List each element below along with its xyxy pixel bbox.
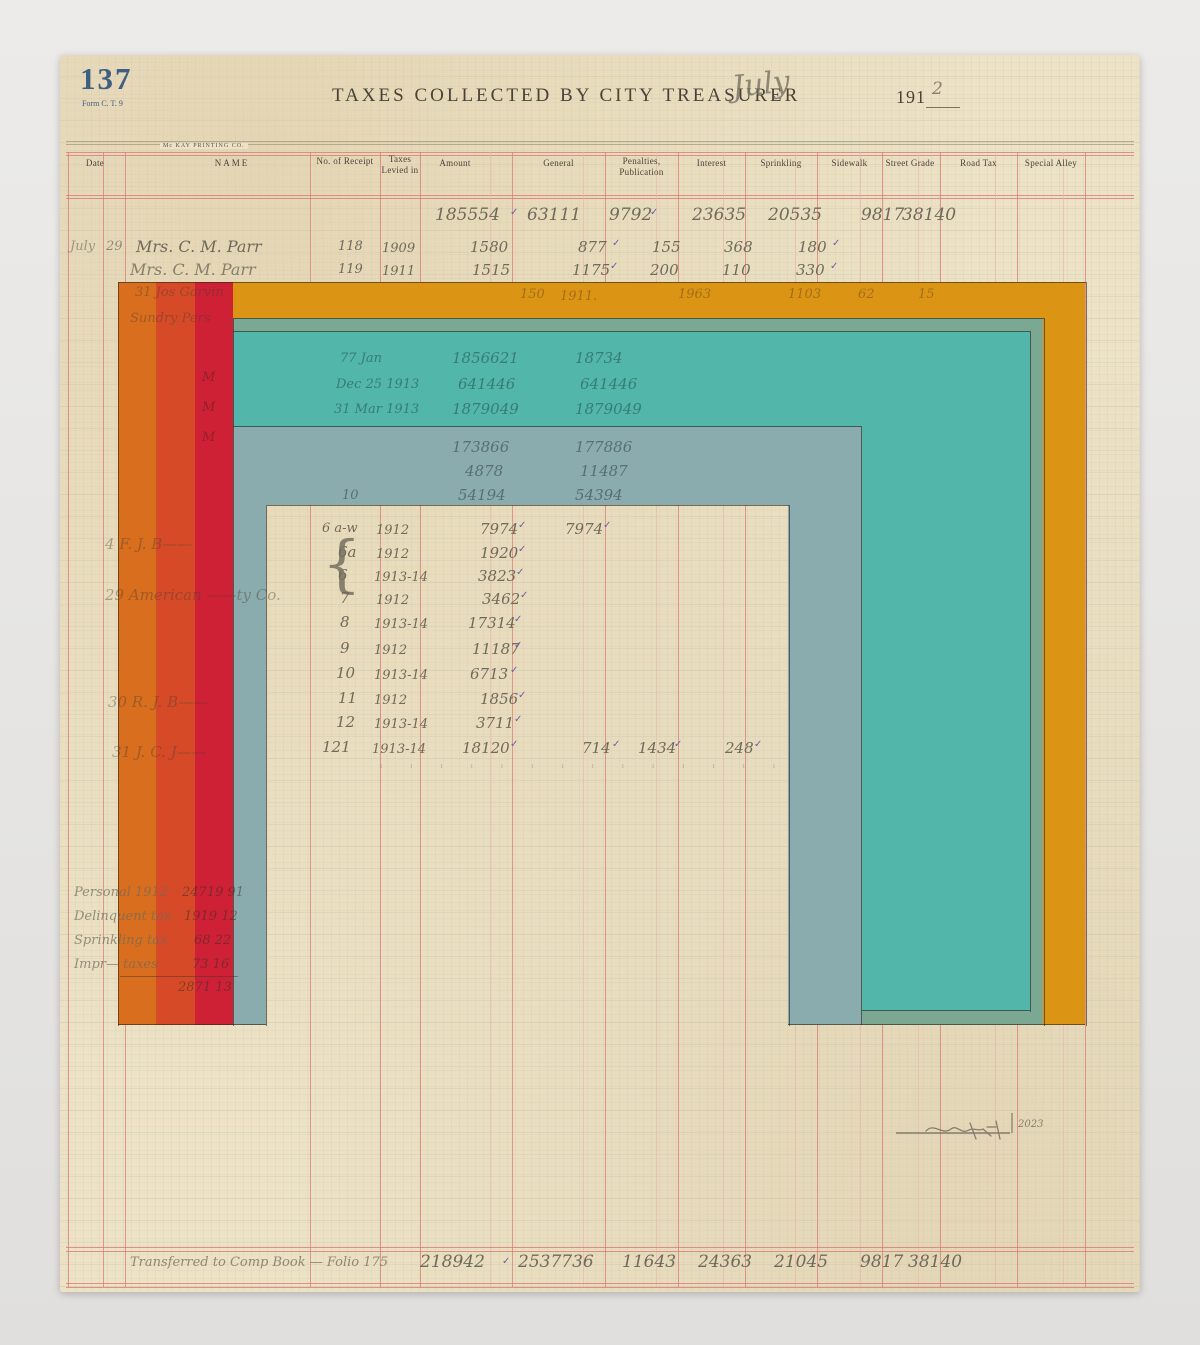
entry-receipt: 118 <box>338 239 363 254</box>
faint-window-name: 4 F. J. B—— <box>105 535 192 553</box>
faint-window-name: 31 J. C. J—— <box>112 743 207 761</box>
check-mark: ✓ <box>510 739 518 750</box>
footer-rule <box>66 1283 1134 1284</box>
year-printed: 191 <box>896 87 926 108</box>
faint-date: Dec 25 1913 <box>336 377 419 392</box>
faint-window-name: 29 American ——ty Co. <box>105 586 281 604</box>
check-mark: ✓ <box>518 520 526 531</box>
entry-date: July <box>70 239 95 254</box>
entry-levied: 1909 <box>382 241 415 256</box>
footer-rule <box>66 1247 1134 1248</box>
header-rule <box>66 195 1134 196</box>
entry-general: 1175 <box>572 261 610 279</box>
check-mark: ✓ <box>502 1256 510 1267</box>
faint-general: 641446 <box>580 375 637 393</box>
summary-total: 2871 13 <box>178 980 232 995</box>
rule-line <box>66 141 1134 142</box>
faint-levied: 1911. <box>560 289 597 304</box>
printer-credit: Mc KAY PRINTING CO. <box>160 143 248 149</box>
page-number: 137 <box>80 61 133 97</box>
col-header-receipt: No. of Receipt <box>314 156 376 167</box>
faint-date: 31 Mar 1913 <box>334 402 419 417</box>
entry-levied: 1911 <box>382 264 415 279</box>
footer-rule <box>66 1251 1134 1252</box>
check-mark: ✓ <box>612 238 620 249</box>
entry-receipt: 119 <box>338 262 363 277</box>
paint-outline <box>861 427 862 1025</box>
check-mark: ✓ <box>518 544 526 555</box>
faint-general: 11487 <box>580 462 628 480</box>
col-header-sprinkling: Sprinkling <box>745 158 817 169</box>
entry-interest: 368 <box>724 238 753 256</box>
summary-total-rule <box>120 976 238 977</box>
faint-amount: 1879049 <box>452 400 519 418</box>
faint-amount: 1963 <box>678 287 711 302</box>
check-mark: ✓ <box>510 207 518 218</box>
faint-receipt: 150 <box>520 287 545 302</box>
entry-penalties: 155 <box>652 238 681 256</box>
check-mark: ✓ <box>650 207 658 218</box>
faint-general: 18734 <box>575 349 623 367</box>
check-mark: ✓ <box>674 739 682 750</box>
footer-amount: 218942 <box>420 1252 485 1272</box>
svg-text:2023: 2023 <box>1017 1119 1043 1130</box>
artist-signature: 2023 <box>892 1103 1072 1151</box>
entry-day: 29 <box>106 239 123 254</box>
col-header-date: Date <box>65 158 125 169</box>
faint-general: 177886 <box>575 438 632 456</box>
summary-value: 1919 12 <box>184 909 238 924</box>
footer-road-tax: 9817 <box>860 1252 903 1272</box>
check-mark: ✓ <box>514 614 522 625</box>
total-sprinkling: 20535 <box>768 205 822 225</box>
faint-name: Sundry Pers <box>130 311 210 326</box>
check-mark: ✓ <box>516 567 524 578</box>
total-interest: 23635 <box>692 205 746 225</box>
check-mark: ✓ <box>612 739 620 750</box>
faint-stripe-mark: M <box>202 400 215 415</box>
faint-general: 1879049 <box>575 400 642 418</box>
entry-amount: 1515 <box>472 261 510 279</box>
faint-date: 10 <box>342 488 359 503</box>
faint-amount: 173866 <box>452 438 509 456</box>
col-header-penalties: Penalties, Publication <box>607 156 676 178</box>
header-rule <box>66 152 1134 153</box>
summary-value: 24719 91 <box>182 885 244 900</box>
summary-label: Impr— taxes <box>74 957 158 972</box>
col-header-road-tax: Road Tax <box>940 158 1017 169</box>
total-sidewalk: 9817 <box>861 205 904 225</box>
faint-stripe-mark: M <box>202 430 215 445</box>
entry-interest: 110 <box>722 261 751 279</box>
page-title: TAXES COLLECTED BY CITY TREASURER <box>332 85 800 107</box>
total-penalties: 9792 <box>609 205 652 225</box>
total-street-grade: 38140 <box>902 205 956 225</box>
check-mark: ✓ <box>610 261 618 272</box>
check-mark: ✓ <box>514 714 522 725</box>
faint-amount: 4878 <box>465 462 503 480</box>
faint-general: 1103 <box>788 287 821 302</box>
header-rule <box>66 155 1134 156</box>
faint-name: 31 Jos Garvin <box>135 285 224 300</box>
entry-sprinkling: 330 <box>796 261 825 279</box>
summary-label: Delinquent tax <box>74 909 171 924</box>
faint-stripe-mark: M <box>202 370 215 385</box>
faint-window-name: 30 R. J. B—— <box>108 693 208 711</box>
entry-amount: 1580 <box>470 238 508 256</box>
check-mark: ✓ <box>520 590 528 601</box>
footer-note: Transferred to Comp Book — Folio 175 <box>130 1255 388 1270</box>
col-header-interest: Interest <box>678 158 745 169</box>
faint-penalties: 62 <box>858 287 875 302</box>
summary-label: Sprinkling tax <box>74 933 167 948</box>
summary-value: 73 16 <box>192 957 229 972</box>
faint-amount: 1856621 <box>452 349 519 367</box>
faint-date: 77 Jan <box>340 351 382 366</box>
check-mark: ✓ <box>510 665 518 676</box>
entry-name: Mrs. C. M. Parr <box>136 237 262 256</box>
check-mark: ✓ <box>830 261 838 272</box>
faint-amount: 54194 <box>458 486 506 504</box>
footer-general: 2537736 <box>518 1252 594 1272</box>
paint-outline <box>862 1010 1030 1011</box>
column-rule <box>103 152 104 1287</box>
faint-general: 54394 <box>575 486 623 504</box>
column-rule <box>68 152 69 1287</box>
check-mark: ✓ <box>754 739 762 750</box>
header-rule <box>66 198 1134 199</box>
check-mark: ✓ <box>514 640 522 651</box>
footer-interest: 24363 <box>698 1252 752 1272</box>
photo-background: { "page": { "number": "137", "form": "Fo… <box>0 0 1200 1345</box>
entry-sprinkling: 180 <box>798 238 827 256</box>
year-underline <box>926 107 960 108</box>
faint-interest: 15 <box>918 287 935 302</box>
check-mark: ✓ <box>518 690 526 701</box>
total-general: 63111 <box>527 205 581 225</box>
paint-outline <box>266 505 790 1026</box>
col-header-name: NAME <box>172 158 292 169</box>
col-header-street-grade: Street Grade <box>880 158 940 169</box>
paint-outline <box>233 426 862 427</box>
col-header-amount: Amount <box>409 158 501 169</box>
footer-penalties: 11643 <box>622 1252 676 1272</box>
footer-rule <box>66 1287 1134 1288</box>
summary-value: 68 22 <box>194 933 231 948</box>
summary-label: Personal 1912 <box>74 885 168 900</box>
entry-name: Mrs. C. M. Parr <box>130 260 256 279</box>
faint-amount: 641446 <box>458 375 515 393</box>
col-header-general: General <box>512 158 605 169</box>
footer-sprinkling: 21045 <box>774 1252 828 1272</box>
ledger-sheet: 137 Form C. T. 9 TAXES COLLECTED BY CITY… <box>60 55 1140 1292</box>
col-header-special-alley: Special Alley <box>1017 158 1085 169</box>
entry-general: 877 <box>578 238 607 256</box>
year-handwritten: 2 <box>932 79 943 99</box>
footer-special-alley: 38140 <box>908 1252 962 1272</box>
check-mark: ✓ <box>832 238 840 249</box>
col-header-sidewalk: Sidewalk <box>817 158 882 169</box>
total-amount: 185554 <box>435 205 500 225</box>
entry-penalties: 200 <box>650 261 679 279</box>
check-mark: ✓ <box>603 520 611 531</box>
form-number: Form C. T. 9 <box>82 99 123 108</box>
month-handwritten: July <box>730 64 791 105</box>
